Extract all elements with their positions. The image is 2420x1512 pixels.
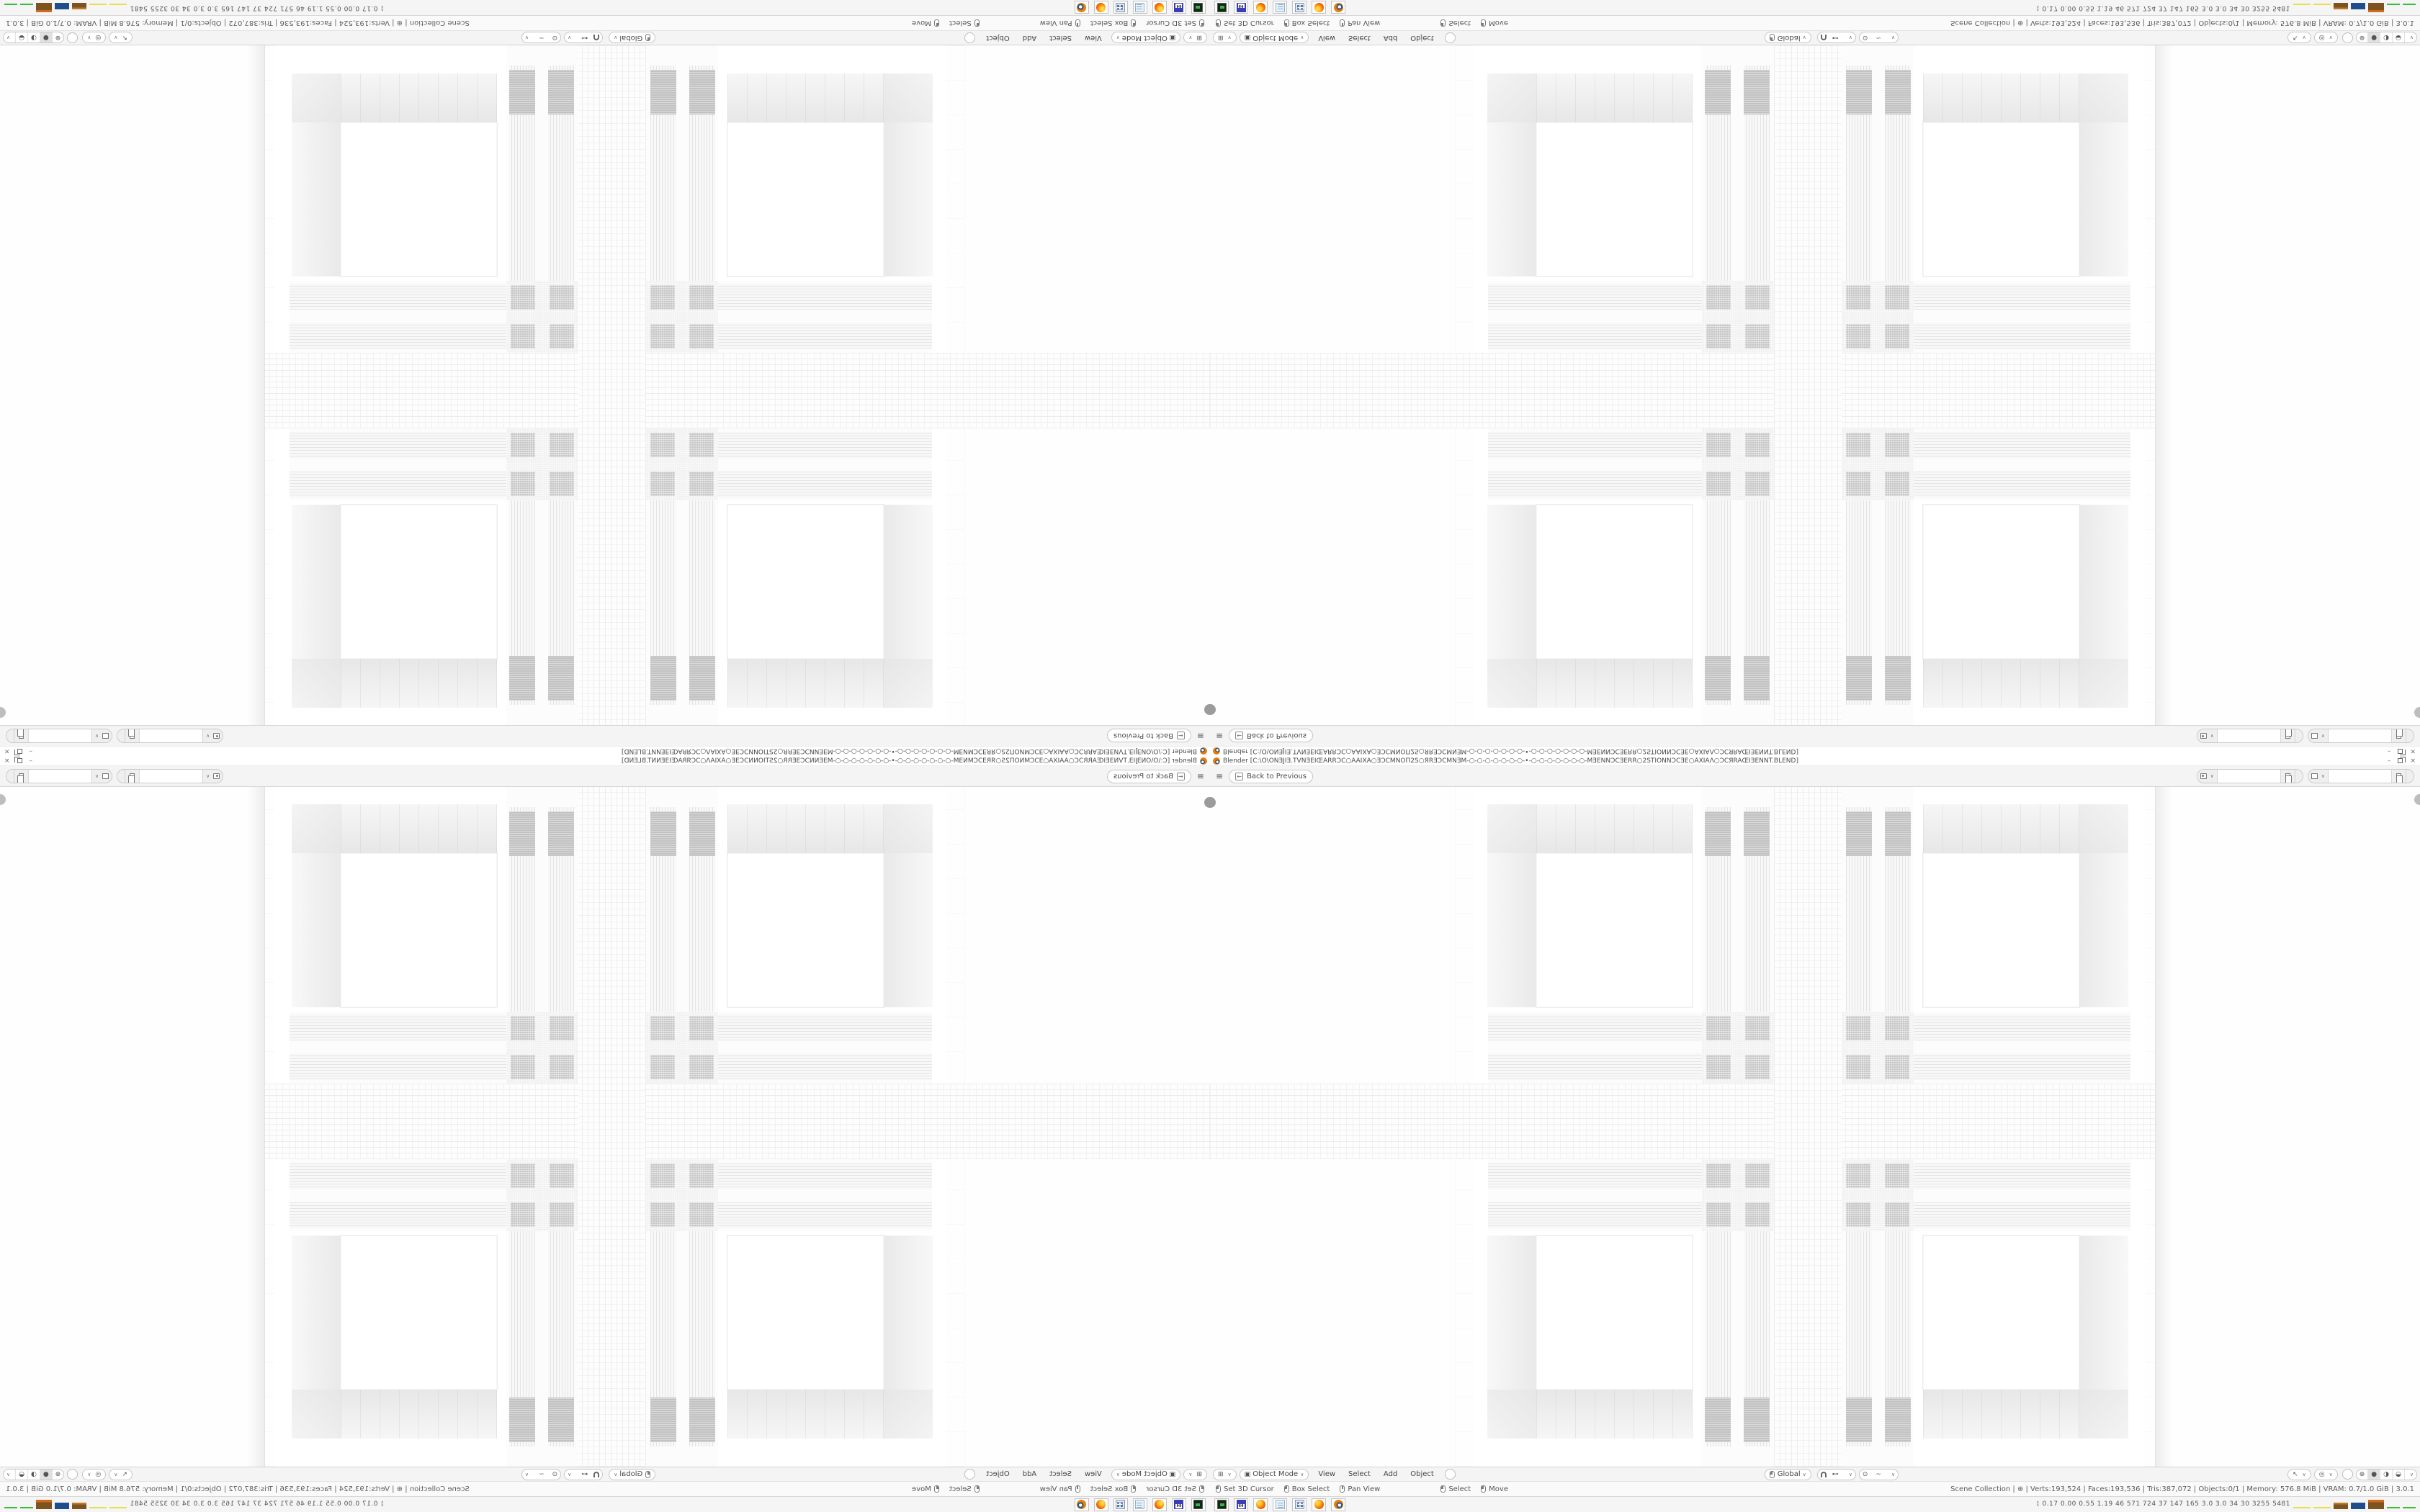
blender-logo-icon (1200, 757, 1207, 765)
taskbar-app-blender[interactable] (1331, 1498, 1345, 1511)
mode-selector[interactable]: ▣Object Mode∨ (1111, 1469, 1181, 1480)
hint-set-3d-cursor: Set 3D Cursor (1216, 19, 1274, 27)
blender-logo-icon (1213, 757, 1220, 765)
firefox-icon (1097, 1500, 1106, 1509)
mouse-left-icon (974, 19, 980, 27)
taskbar-app-calculator[interactable] (1292, 1498, 1307, 1511)
show-overlays-button[interactable]: ◎∨ (2314, 1469, 2338, 1480)
dosbox-icon (1194, 3, 1204, 12)
status-bar: Set 3D Cursor Box Select Pan View Select… (1210, 16, 2420, 31)
window-frame (1842, 1159, 2145, 1467)
mode-label: Object Mode (1122, 1470, 1168, 1478)
os-titlebar: Blender [C:\O\ONƎJIƎ.TVNƎEIŒARRƆC○AAIXA○… (0, 746, 1210, 756)
proportional-editing-group[interactable]: ⊙~∨ (1859, 32, 1899, 44)
chevron-down-icon: ∨ (206, 773, 210, 779)
shading-wireframe-icon[interactable]: ⊕ (52, 1470, 64, 1480)
taskbar-app-notepad[interactable] (1133, 1, 1147, 14)
shading-material-icon[interactable]: ◑ (2380, 1470, 2393, 1480)
hint-pan-view: Pan View (1340, 19, 1380, 27)
scene-selector[interactable]: ∨ (117, 769, 223, 783)
wall-corner-edge (246, 787, 265, 1467)
mouse-middle-icon (1340, 1485, 1345, 1493)
menu-object[interactable]: Object (980, 34, 1016, 42)
mouse-left-drag-icon (1284, 19, 1289, 27)
viewport-3d[interactable] (0, 45, 1210, 725)
tray-graph-brown-tall[interactable] (36, 1500, 52, 1509)
menu-view[interactable]: View (1078, 1470, 1108, 1478)
hint-select: Select (1440, 19, 1471, 27)
menu-select[interactable]: Select (1342, 34, 1377, 42)
shading-rendered-icon[interactable]: ◒ (15, 1470, 27, 1480)
shading-material-icon[interactable]: ◑ (2380, 33, 2393, 43)
tray-expander-icon[interactable]: ∧∧ (2036, 1501, 2039, 1507)
tray-graph-green[interactable] (20, 4, 33, 5)
new-scene-button[interactable] (2281, 770, 2295, 783)
restore-button[interactable] (17, 758, 22, 763)
shading-wireframe-icon[interactable]: ⊕ (2357, 1470, 2369, 1480)
taskbar-app-dosbox[interactable] (1191, 1498, 1206, 1511)
chevron-down-icon: ∨ (1228, 1472, 1232, 1477)
proportional-editing-group[interactable]: ⊙~∨ (1859, 1469, 1899, 1480)
chevron-down-icon: ∨ (95, 733, 99, 739)
falloff-icon: ~ (536, 1470, 547, 1480)
chevron-down-icon: ∨ (1116, 1472, 1120, 1477)
taskbar-app-notepad[interactable] (1133, 1498, 1147, 1511)
editor-3d-viewport-icon: ⊞ (1218, 1471, 1224, 1478)
shading-material-icon[interactable]: ◑ (27, 33, 40, 43)
menu-select[interactable]: Select (1043, 34, 1078, 42)
view-layer-selector[interactable]: ∨ (2308, 769, 2414, 783)
taskbar-app-dosbox[interactable] (1214, 1498, 1229, 1511)
taskbar-app-firefox-2[interactable] (1094, 1498, 1108, 1511)
hint-set-3d-cursor: Set 3D Cursor (1146, 19, 1204, 27)
copy-page-icon (2396, 733, 2401, 739)
snapping-group[interactable]: ⊷∨ (564, 32, 603, 44)
architecture-render (1210, 45, 2420, 725)
hamburger-menu-icon[interactable]: ≡ (1216, 731, 1223, 741)
taskbar-app-notepad[interactable] (1273, 1, 1287, 14)
snapping-group[interactable]: ⊷∨ (564, 1469, 603, 1480)
hamburger-menu-icon[interactable]: ≡ (1197, 731, 1204, 741)
overlays-icon: ◎ (2319, 35, 2325, 42)
window-frame (1842, 45, 2145, 353)
new-view-layer-button[interactable] (14, 770, 28, 783)
magnet-snap-icon (593, 1472, 599, 1477)
show-gizmo-button[interactable]: ↖∨ (2287, 32, 2311, 44)
taskbar-app-calculator[interactable] (1292, 1, 1307, 14)
chevron-down-icon: ∨ (1116, 35, 1120, 41)
hint-select: Select (1440, 1485, 1471, 1493)
show-overlays-button[interactable]: ◎∨ (82, 32, 106, 44)
tray-graph-yellow[interactable] (2293, 4, 2311, 5)
shading-wireframe-icon[interactable]: ⊕ (52, 33, 64, 43)
hint-pan-view: Pan View (1040, 1485, 1080, 1493)
floppy-64-icon: 64 (1175, 3, 1184, 12)
taskbar-app-firefox[interactable] (1253, 1498, 1268, 1511)
viewport-header: ⊞∨ ▣Object Mode∨ View Select Add Object … (0, 31, 1210, 45)
editor-type-button[interactable]: ⊞∨ (1183, 1469, 1207, 1480)
mouse-left-icon (1199, 19, 1204, 27)
scene-name-field[interactable] (2218, 729, 2281, 742)
object-mode-icon: ▣ (1170, 35, 1176, 42)
mouse-left-icon (1216, 1485, 1221, 1493)
notepad-icon (1276, 3, 1285, 12)
gizmo-icon: ↖ (2293, 1471, 2298, 1478)
magnet-snap-icon (1821, 35, 1827, 41)
menu-object[interactable]: Object (980, 1470, 1016, 1478)
tray-graph-blue[interactable] (55, 3, 69, 9)
toolbar-collapsed-tab[interactable] (1204, 797, 1210, 808)
taskbar-app-calculator[interactable] (1113, 1, 1128, 14)
menu-add[interactable]: Add (1016, 1470, 1043, 1478)
editor-type-button[interactable]: ⊞∨ (1213, 1469, 1237, 1480)
windows-taskbar: 64 ∧∧ 0.17 0.00 0.55 1.19 46 571 724 37 … (1210, 1496, 2420, 1512)
snapping-group[interactable]: ⊷∨ (1817, 32, 1856, 44)
back-to-previous-button[interactable]: ← Back to Previous (1229, 729, 1313, 743)
new-view-layer-button[interactable] (2392, 770, 2406, 783)
new-view-layer-button[interactable] (14, 729, 28, 742)
tray-graph-brown[interactable] (2334, 1503, 2348, 1509)
snap-target-icon: ⊷ (578, 33, 591, 43)
object-mode-icon: ▣ (1245, 35, 1251, 42)
menu-add[interactable]: Add (1016, 34, 1043, 42)
orientation-icon (1770, 35, 1775, 42)
taskbar-app-blender[interactable] (1075, 1, 1089, 14)
menu-object[interactable]: Object (1404, 34, 1440, 42)
menu-view[interactable]: View (1312, 1470, 1342, 1478)
windows-taskbar: 64 ∧∧ 0.17 0.00 0.55 1.19 46 571 724 37 … (0, 0, 1210, 16)
window-frame (1842, 428, 2145, 725)
blender-topbar: ≡ ← Back to Previous ∨ ∨ (0, 766, 1210, 787)
mouse-left-drag-icon (1131, 1485, 1136, 1493)
view-layer-selector[interactable]: ∨ (2308, 729, 2414, 743)
window-title: Blender [C:\O\ONƎJIƎ.TVNƎEIŒARRƆC○AAIXA○… (32, 748, 1197, 755)
snapping-group[interactable]: ⊷∨ (1817, 1469, 1856, 1480)
editor-3d-viewport-icon: ⊞ (1218, 35, 1224, 42)
new-scene-button[interactable] (125, 770, 139, 783)
menu-object[interactable]: Object (1404, 1470, 1440, 1478)
shading-wireframe-icon[interactable]: ⊕ (2357, 33, 2369, 43)
menu-view[interactable]: View (1312, 34, 1342, 42)
restore-button[interactable] (2398, 749, 2403, 754)
scene-name-field[interactable] (139, 770, 202, 783)
tray-graph-green[interactable] (20, 1507, 33, 1508)
shading-mode-group[interactable]: ⊕ ● ◑ ◒ ∨ (3, 32, 64, 44)
tray-graph-brown-tall[interactable] (36, 3, 52, 12)
menu-select[interactable]: Select (1342, 1470, 1377, 1478)
wall-horizontal-band (1210, 1084, 2155, 1159)
viewport-3d[interactable] (1210, 45, 2420, 725)
show-gizmo-button[interactable]: ↖∨ (2287, 1469, 2311, 1480)
back-to-previous-button[interactable]: ← Back to Previous (1107, 770, 1191, 783)
header-circle-button[interactable] (1445, 1469, 1456, 1480)
transform-orientation-selector[interactable]: Global∨ (609, 32, 655, 44)
xray-toggle-button[interactable] (2342, 32, 2353, 43)
editor-type-button[interactable]: ⊞∨ (1213, 32, 1237, 44)
tray-graph-yellow[interactable] (109, 4, 127, 5)
taskbar-app-blender[interactable] (1331, 1, 1345, 14)
tray-graph-blue[interactable] (55, 1503, 69, 1509)
shading-mode-group[interactable]: ⊕ ● ◑ ◒ ∨ (2356, 1469, 2417, 1480)
taskbar-app-calculator[interactable] (1113, 1498, 1128, 1511)
falloff-icon: ~ (536, 33, 547, 43)
calculator-icon (1116, 1500, 1126, 1509)
shading-mode-group[interactable]: ⊕ ● ◑ ◒ ∨ (3, 1469, 64, 1480)
view-layer-icon (102, 773, 109, 779)
chevron-down-icon: ∨ (2321, 733, 2325, 739)
proportional-editing-group[interactable]: ⊙~∨ (521, 1469, 561, 1480)
blender-icon (1077, 3, 1087, 12)
new-view-layer-button[interactable] (2392, 729, 2406, 742)
window-frame (646, 1159, 946, 1467)
tray-graph-yellow[interactable] (2293, 1507, 2311, 1508)
menu-add[interactable]: Add (1377, 34, 1404, 42)
restore-button[interactable] (2398, 758, 2403, 763)
tray-graph-brown[interactable] (2334, 3, 2348, 9)
hint-move: Move (912, 1485, 939, 1493)
shading-solid-icon[interactable]: ● (40, 1470, 52, 1480)
menu-select[interactable]: Select (1043, 1470, 1078, 1478)
tray-graph-green[interactable] (2387, 4, 2400, 5)
viewport-header: ⊞∨ ▣Object Mode∨ View Select Add Object … (1210, 31, 2420, 45)
floppy-64-icon: 64 (1175, 1500, 1184, 1509)
chevron-down-icon: ∨ (206, 733, 210, 739)
xray-toggle-button[interactable] (67, 32, 78, 43)
taskbar-app-notepad[interactable] (1273, 1498, 1287, 1511)
transform-orientation-selector[interactable]: Global∨ (1765, 32, 1811, 44)
scene-icon (2200, 733, 2207, 739)
shading-solid-icon[interactable]: ● (40, 33, 52, 43)
restore-button[interactable] (17, 749, 22, 754)
show-overlays-button[interactable]: ◎∨ (82, 1469, 106, 1480)
view-layer-selector[interactable]: ∨ (6, 769, 112, 783)
taskbar-app-floppy64[interactable]: 64 (1234, 1, 1248, 14)
wall-vertical-pier (578, 787, 646, 1467)
chevron-down-icon: ∨ (2321, 773, 2325, 779)
mode-selector[interactable]: ▣Object Mode∨ (1240, 32, 1309, 44)
view-layer-selector[interactable]: ∨ (6, 729, 112, 743)
dosbox-icon (1194, 1500, 1204, 1509)
viewport-3d[interactable] (1210, 787, 2420, 1467)
status-bar: Set 3D Cursor Box Select Pan View Select… (0, 1481, 1210, 1496)
system-tray: ∧∧ 0.17 0.00 0.55 1.19 46 571 724 37 147… (2036, 3, 2416, 12)
tray-graph-brown[interactable] (72, 1503, 86, 1509)
shading-rendered-icon[interactable]: ◒ (15, 33, 27, 43)
overlays-icon: ◎ (95, 1471, 101, 1478)
taskbar-app-firefox[interactable] (1253, 1, 1268, 14)
tray-expander-icon[interactable]: ∧∧ (381, 1501, 384, 1507)
proportional-editing-icon: ⊙ (550, 1470, 561, 1480)
editor-3d-viewport-icon: ⊞ (1196, 1471, 1202, 1478)
chevron-down-icon: ∨ (1188, 1472, 1192, 1477)
chevron-down-icon: ∨ (2210, 773, 2214, 779)
proportional-editing-group[interactable]: ⊙~∨ (521, 32, 561, 44)
back-to-previous-button[interactable]: ← Back to Previous (1107, 729, 1191, 743)
hint-set-3d-cursor: Set 3D Cursor (1216, 1485, 1274, 1493)
minimize-button[interactable]: – (2388, 757, 2391, 765)
tray-hardware-stats: 0.17 0.00 0.55 1.19 46 571 724 37 147 16… (130, 1500, 378, 1508)
show-overlays-button[interactable]: ◎∨ (2314, 32, 2338, 44)
scene-selector[interactable]: ∨ (2197, 769, 2303, 783)
scene-selector[interactable]: ∨ (2197, 729, 2303, 743)
menu-view[interactable]: View (1078, 34, 1108, 42)
close-button[interactable]: × (2410, 748, 2416, 755)
shading-solid-icon[interactable]: ● (2368, 33, 2380, 43)
viewport-3d[interactable] (0, 787, 1210, 1467)
taskbar-app-firefox-2[interactable] (1094, 1, 1108, 14)
status-bar: Set 3D Cursor Box Select Pan View Select… (1210, 1481, 2420, 1496)
taskbar-app-firefox-2[interactable] (1312, 1, 1326, 14)
new-scene-button[interactable] (125, 729, 139, 742)
blender-logo-icon (1213, 748, 1220, 755)
taskbar-app-dosbox[interactable] (1191, 1, 1206, 14)
tray-graph-yellow[interactable] (2313, 4, 2331, 5)
sidebar-collapsed-tab[interactable] (2414, 794, 2420, 805)
wall-vertical-pier (1774, 45, 1842, 725)
tray-graph-green[interactable] (4, 4, 17, 5)
back-to-previous-label: Back to Previous (1113, 732, 1173, 740)
scene-stats: Scene Collection | ⊕ | Verts:193,524 | F… (1950, 1485, 2414, 1493)
show-gizmo-button[interactable]: ↖∨ (109, 1469, 133, 1480)
object-mode-icon: ▣ (1170, 1471, 1176, 1478)
gizmo-icon: ↖ (122, 1471, 127, 1478)
shading-mode-group[interactable]: ⊕ ● ◑ ◒ ∨ (2356, 32, 2417, 44)
menu-add[interactable]: Add (1377, 1470, 1404, 1478)
taskbar-app-firefox[interactable] (1152, 1, 1167, 14)
close-button[interactable]: × (2410, 757, 2416, 765)
firefox-icon (1256, 1500, 1265, 1509)
notepad-icon (1136, 1500, 1145, 1509)
blender-logo-icon (1200, 748, 1207, 755)
floppy-64-icon: 64 (1237, 1500, 1246, 1509)
scene-stats: Scene Collection | ⊕ | Verts:193,524 | F… (6, 19, 470, 27)
back-to-previous-button[interactable]: ← Back to Previous (1229, 770, 1313, 783)
tray-graph-yellow[interactable] (2313, 1507, 2331, 1508)
shading-material-icon[interactable]: ◑ (27, 1470, 40, 1480)
taskbar-app-firefox-2[interactable] (1312, 1498, 1326, 1511)
system-tray: ∧∧ 0.17 0.00 0.55 1.19 46 571 724 37 147… (4, 1500, 384, 1509)
close-button[interactable]: × (4, 757, 10, 765)
taskbar-app-floppy64[interactable]: 64 (1172, 1498, 1186, 1511)
mouse-left-drag-icon (1481, 19, 1486, 27)
taskbar-app-floppy64[interactable]: 64 (1172, 1, 1186, 14)
new-scene-button[interactable] (2281, 729, 2295, 742)
status-bar: Set 3D Cursor Box Select Pan View Select… (0, 16, 1210, 31)
tray-graph-blue[interactable] (2351, 1503, 2365, 1509)
shading-rendered-icon[interactable]: ◒ (2393, 1470, 2405, 1480)
close-button[interactable]: × (4, 748, 10, 755)
transform-orientation-selector[interactable]: Global∨ (609, 1469, 655, 1480)
header-circle-button[interactable] (1445, 32, 1456, 43)
mode-selector[interactable]: ▣Object Mode∨ (1111, 32, 1181, 44)
view-layer-name-field[interactable] (2329, 770, 2392, 783)
minimize-button[interactable]: – (30, 757, 33, 765)
system-tray: ∧∧ 0.17 0.00 0.55 1.19 46 571 724 37 147… (4, 3, 384, 12)
tray-graph-brown[interactable] (72, 3, 86, 9)
transform-orientation-selector[interactable]: Global∨ (1765, 1469, 1811, 1480)
firefox-icon (1314, 3, 1324, 12)
os-titlebar: Blender [C:\O\ONƎJIƎ.TVNƎEIŒARRƆC○AAIXA○… (1210, 746, 2420, 756)
scene-icon (213, 773, 220, 779)
tray-expander-icon[interactable]: ∧∧ (2036, 5, 2039, 11)
mouse-middle-icon (1075, 19, 1080, 27)
notepad-icon (1136, 3, 1145, 12)
hamburger-menu-icon[interactable]: ≡ (1216, 771, 1223, 781)
hint-box-select: Box Select (1284, 1485, 1330, 1493)
tray-graph-brown-tall[interactable] (2368, 3, 2384, 12)
tray-graph-yellow[interactable] (109, 1507, 127, 1508)
minimize-button[interactable]: – (2388, 748, 2391, 755)
mouse-left-drag-icon (1481, 1485, 1486, 1493)
xray-toggle-button[interactable] (67, 1469, 78, 1480)
minimize-button[interactable]: – (30, 748, 33, 755)
shading-rendered-icon[interactable]: ◒ (2393, 33, 2405, 43)
header-circle-button[interactable] (964, 32, 975, 43)
xray-toggle-button[interactable] (2342, 1469, 2353, 1480)
tray-hardware-stats: 0.17 0.00 0.55 1.19 46 571 724 37 147 16… (2042, 4, 2290, 12)
sidebar-collapsed-tab[interactable] (2414, 707, 2420, 718)
wall-horizontal-band (1210, 353, 2155, 428)
header-circle-button[interactable] (964, 1469, 975, 1480)
tray-graph-green[interactable] (2403, 1507, 2416, 1508)
tray-graph-green[interactable] (4, 1507, 17, 1508)
wall-corner-edge (246, 45, 265, 725)
scene-selector[interactable]: ∨ (117, 729, 223, 743)
view-layer-name-field[interactable] (28, 770, 91, 783)
taskbar-app-blender[interactable] (1075, 1498, 1089, 1511)
scene-stats: Scene Collection | ⊕ | Verts:193,524 | F… (1950, 19, 2414, 27)
overlays-icon: ◎ (2319, 1471, 2325, 1478)
dosbox-icon (1217, 3, 1227, 12)
scene-name-field[interactable] (139, 729, 202, 742)
view-layer-name-field[interactable] (2329, 729, 2392, 742)
copy-page-icon (19, 773, 24, 780)
tray-graph-green[interactable] (2403, 4, 2416, 5)
tray-graph-blue[interactable] (2351, 3, 2365, 9)
tray-graph-brown-tall[interactable] (2368, 1500, 2384, 1509)
tray-graph-green[interactable] (2387, 1507, 2400, 1508)
window-frame (1474, 787, 1774, 1084)
editor-type-button[interactable]: ⊞∨ (1183, 32, 1207, 44)
blender-icon (1077, 1500, 1087, 1509)
mode-selector[interactable]: ▣Object Mode∨ (1240, 1469, 1309, 1480)
orientation-icon (1770, 1471, 1775, 1478)
copy-page-icon (2285, 773, 2290, 780)
tray-graph-yellow[interactable] (89, 4, 107, 5)
taskbar-app-floppy64[interactable]: 64 (1234, 1498, 1248, 1511)
mouse-left-icon (1440, 1485, 1446, 1493)
show-gizmo-button[interactable]: ↖∨ (109, 32, 133, 44)
hint-move: Move (912, 19, 939, 27)
orientation-icon (645, 1471, 650, 1478)
taskbar-app-dosbox[interactable] (1214, 1, 1229, 14)
view-layer-name-field[interactable] (28, 729, 91, 742)
window-title: Blender [C:\O\ONƎJIƎ.TVNƎEIŒARRƆC○AAIXA○… (1223, 757, 2388, 765)
shading-solid-icon[interactable]: ● (2368, 1470, 2380, 1480)
taskbar-app-firefox[interactable] (1152, 1498, 1167, 1511)
tray-expander-icon[interactable]: ∧∧ (381, 5, 384, 11)
tray-graph-yellow[interactable] (89, 1507, 107, 1508)
toolbar-collapsed-tab[interactable] (1204, 704, 1210, 715)
window-frame (1842, 787, 2145, 1084)
screen: Blender [C:\O\ONƎJIƎ.TVNƎEIŒARRƆC○AAIXA○… (0, 0, 2420, 1512)
mouse-middle-icon (1075, 1485, 1080, 1493)
scene-name-field[interactable] (2218, 770, 2281, 783)
window-frame (1474, 428, 1774, 725)
windows-taskbar: 64 ∧∧ 0.17 0.00 0.55 1.19 46 571 724 37 … (0, 1496, 1210, 1512)
mouse-left-icon (1216, 19, 1221, 27)
hamburger-menu-icon[interactable]: ≡ (1197, 771, 1204, 781)
